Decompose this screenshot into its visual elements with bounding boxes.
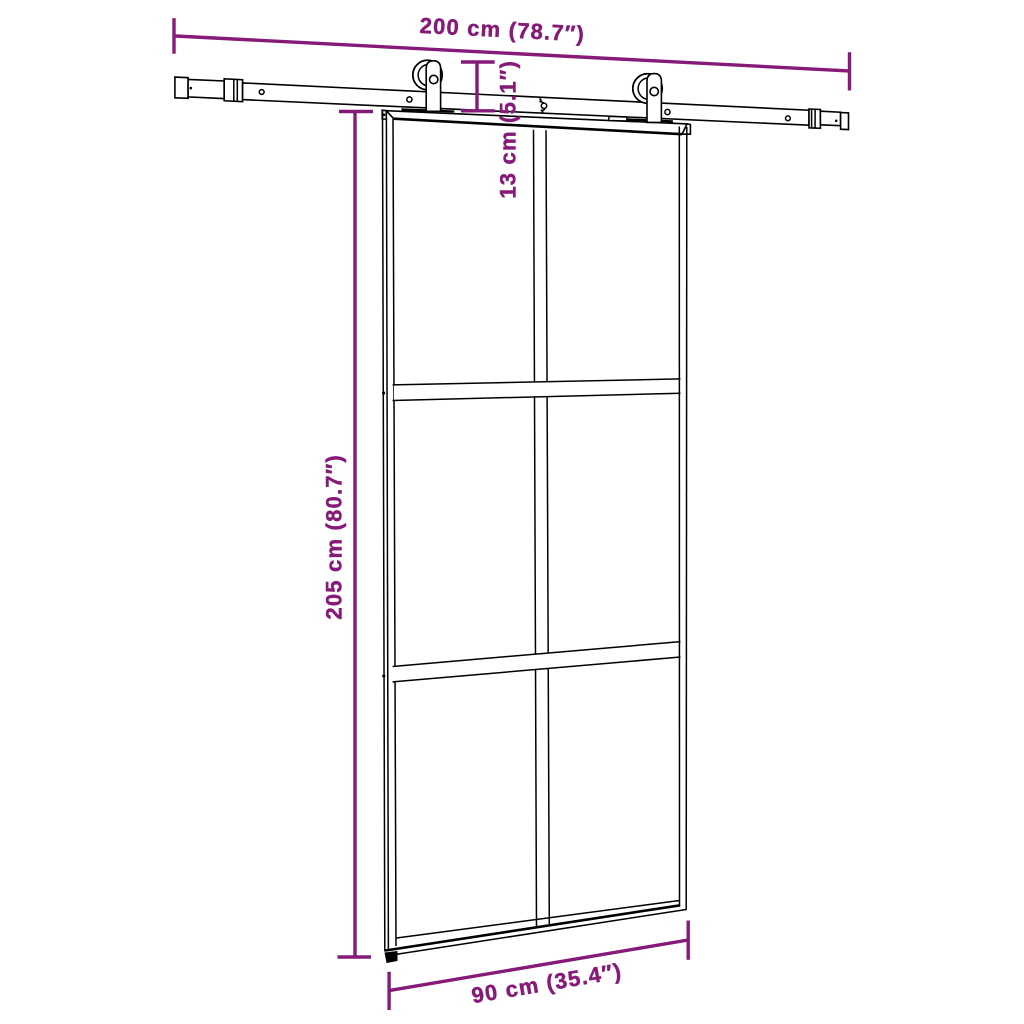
svg-text:90 cm (35.4″): 90 cm (35.4″) [470,958,624,1008]
svg-text:13 cm (5.1″): 13 cm (5.1″) [496,60,521,199]
svg-text:200 cm (78.7″): 200 cm (78.7″) [419,13,586,47]
svg-text:205 cm (80.7″): 205 cm (80.7″) [321,454,346,620]
